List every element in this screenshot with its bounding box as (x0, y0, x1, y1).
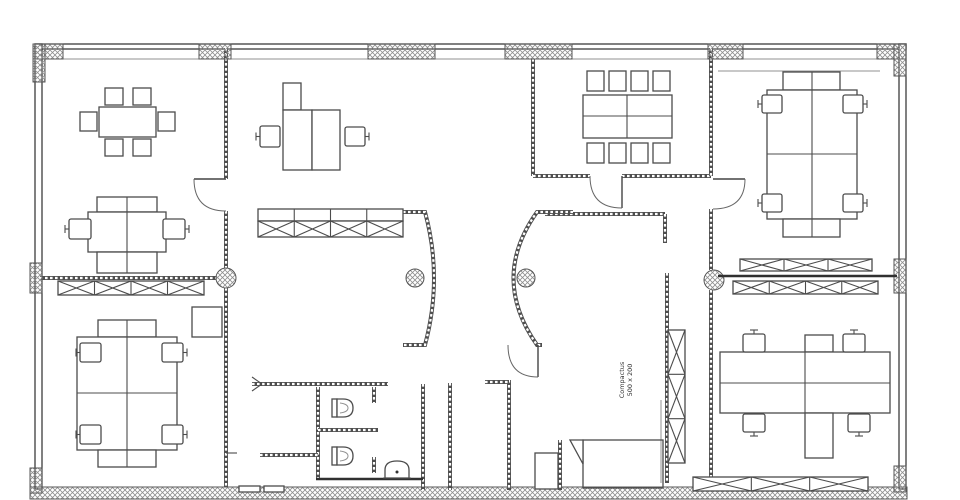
room-a-cabinets (58, 281, 204, 295)
floor-plan-canvas: Compactus500 x 200 (0, 0, 960, 500)
svg-text:500 x 200: 500 x 200 (626, 364, 634, 397)
entrance-vestibule (535, 440, 663, 489)
room-a-desk-pair (65, 197, 189, 273)
floor-plan-svg: Compactus500 x 200 (0, 0, 960, 500)
room-e-cabinets (718, 259, 897, 294)
compactus-label: Compactus500 x 200 (618, 361, 634, 398)
svg-text:Compactus: Compactus (618, 361, 626, 398)
room-b-desk-cluster (76, 307, 222, 467)
room-e-desk-cluster (718, 71, 880, 237)
conference-room-table (583, 71, 672, 163)
room-c-desk (256, 83, 369, 170)
room-a-meeting-table (80, 88, 175, 156)
compactus-shelving (668, 330, 685, 463)
room-f-cabinets (693, 477, 868, 491)
curved-walls (403, 212, 573, 345)
doors (194, 176, 745, 377)
room-f-desk-cluster (720, 330, 890, 458)
room-c-cabinets (258, 209, 403, 237)
